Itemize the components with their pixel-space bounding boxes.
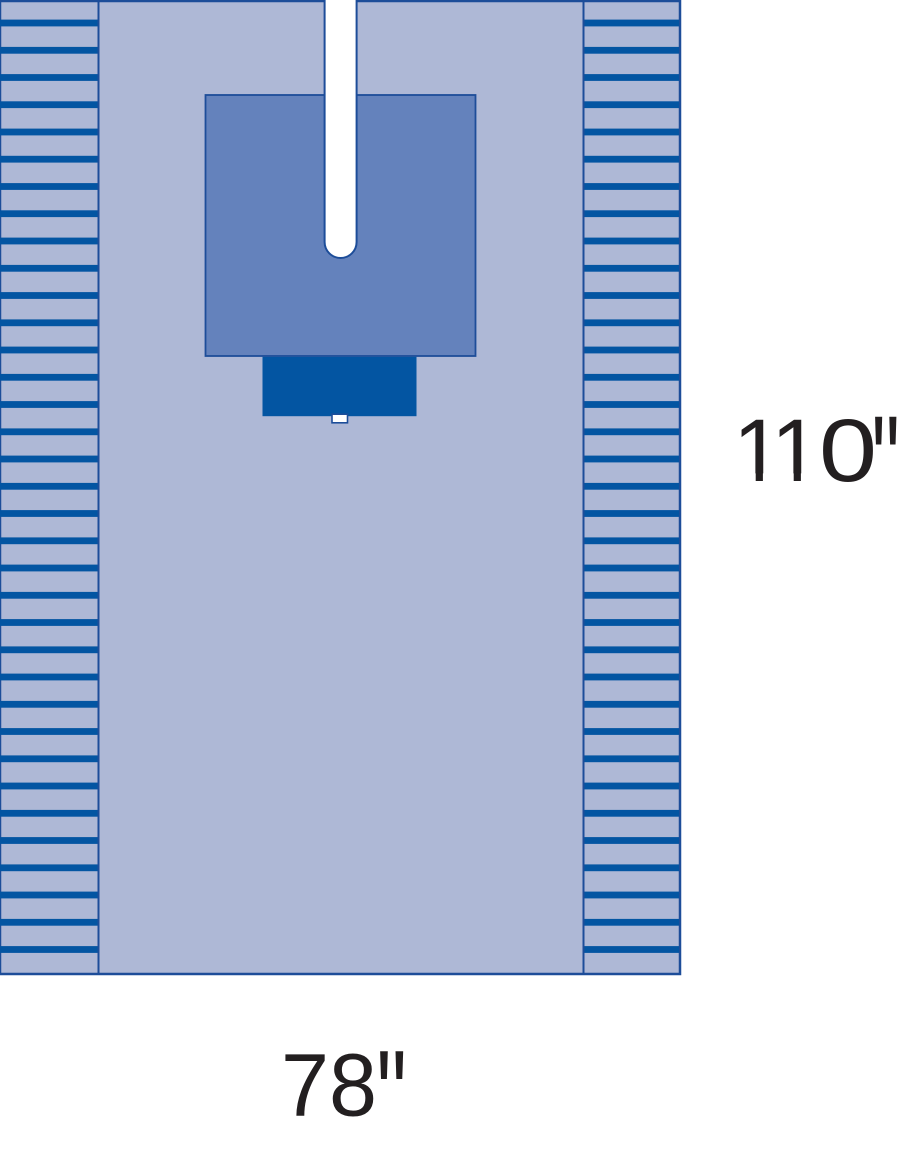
svg-text:78: 78 [281, 1035, 377, 1135]
svg-text:0: 0 [819, 400, 877, 500]
svg-text:": " [377, 1025, 407, 1151]
svg-text:1: 1 [771, 400, 821, 500]
svg-text:": " [872, 390, 900, 533]
